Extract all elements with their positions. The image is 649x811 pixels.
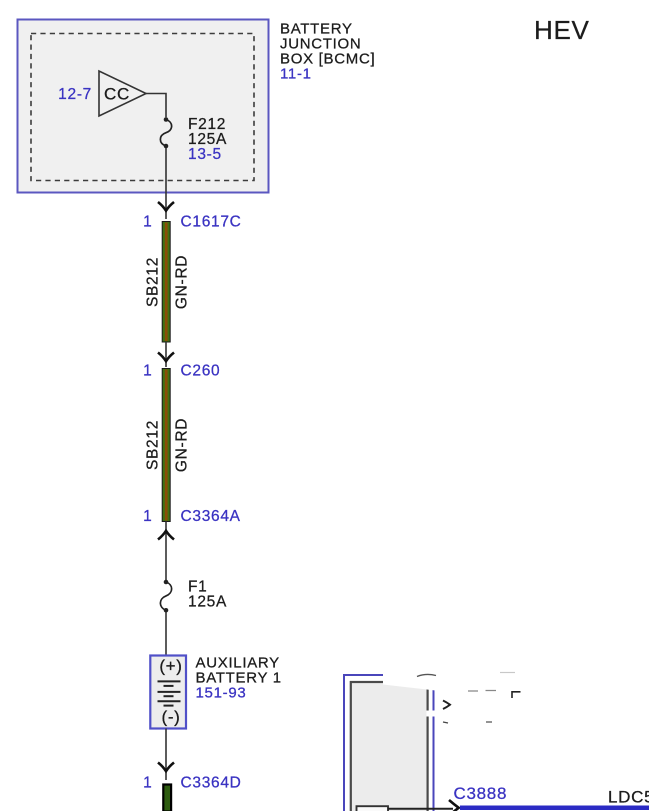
svg-text:SB212: SB212 — [145, 420, 162, 470]
svg-text:125A: 125A — [188, 594, 227, 611]
svg-text:1: 1 — [143, 508, 152, 525]
svg-text:HEV: HEV — [534, 15, 590, 45]
svg-text:C3888: C3888 — [454, 784, 508, 803]
svg-text:(-): (-) — [161, 708, 180, 727]
svg-text:1: 1 — [143, 214, 152, 231]
svg-text:13-5: 13-5 — [188, 146, 222, 163]
svg-text:C1617C: C1617C — [181, 214, 242, 231]
svg-text:1: 1 — [143, 775, 152, 792]
svg-text:GN-RD: GN-RD — [174, 255, 191, 309]
svg-text:11-1: 11-1 — [280, 66, 312, 83]
svg-text:C3364A: C3364A — [181, 508, 241, 525]
svg-text:GN-RD: GN-RD — [174, 418, 191, 472]
svg-text:LDC5: LDC5 — [608, 788, 649, 807]
svg-text:CC: CC — [104, 85, 130, 104]
svg-text:C3364D: C3364D — [181, 775, 242, 792]
svg-text:SB212: SB212 — [145, 257, 162, 307]
svg-text:1: 1 — [143, 363, 152, 380]
svg-text:12-7: 12-7 — [58, 86, 92, 103]
svg-text:C260: C260 — [181, 363, 221, 380]
svg-text:151-93: 151-93 — [196, 685, 247, 702]
svg-text:(+): (+) — [159, 657, 182, 676]
